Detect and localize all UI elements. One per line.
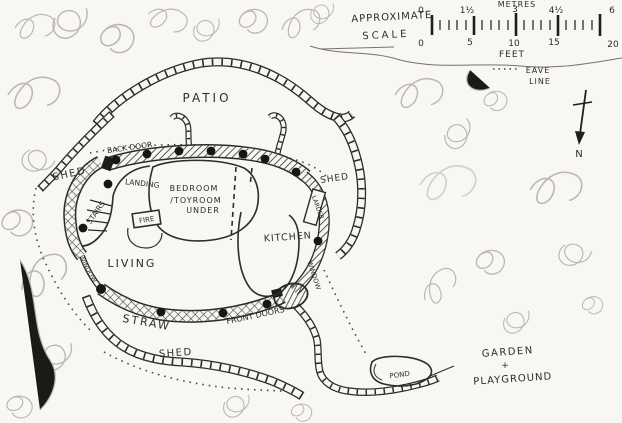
- scribble: [224, 395, 250, 417]
- interior-partitions: [82, 160, 325, 296]
- scribble: [530, 172, 582, 203]
- site-plan-page: APPROXIMATE SCALE METRES 0 1½ 3 4½ 6 0 5…: [0, 0, 622, 423]
- scribble: [20, 260, 55, 410]
- scribble: [8, 77, 60, 108]
- feet-tick-2: 10: [508, 39, 520, 49]
- metres-tick-0: 0: [418, 6, 424, 16]
- plan-labels: PATIO BACK DOOR SHED SHED LANDING BEDROO…: [52, 91, 553, 388]
- landing-label: LANDING: [125, 177, 160, 190]
- eave-line-label-1: EAVE: [526, 66, 551, 75]
- north-arrow-head: [575, 131, 585, 145]
- southeast-path-wall: [296, 306, 438, 392]
- garden-label-plus: +: [501, 361, 509, 371]
- scribble: [420, 166, 476, 199]
- scribble: [582, 297, 602, 314]
- scribble: [239, 9, 267, 33]
- scribble: [395, 79, 443, 108]
- scribble: [441, 118, 476, 151]
- post-dot: [261, 155, 270, 164]
- post-dot: [143, 150, 152, 159]
- metres-tick-3: 4½: [549, 6, 564, 16]
- scribble: [311, 4, 334, 24]
- map-legend: EAVE LINE N: [493, 66, 592, 160]
- scale-bar: APPROXIMATE SCALE METRES 0 1½ 3 4½ 6 0 5…: [351, 0, 619, 60]
- feet-tick-1: 5: [467, 38, 473, 48]
- feet-unit-label: FEET: [499, 50, 525, 60]
- feet-tick-3: 15: [548, 38, 559, 48]
- patio-label: PATIO: [182, 91, 231, 105]
- scribble: [194, 19, 220, 41]
- feet-tick-0: 0: [418, 39, 424, 49]
- post-dot: [157, 308, 166, 317]
- post-dot: [175, 147, 184, 156]
- scale-underline: [320, 47, 394, 49]
- feet-tick-4: 20: [607, 40, 619, 50]
- bedroom-dashed-short: [250, 168, 252, 186]
- post-dot: [239, 150, 248, 159]
- bedroom-label-line1: BEDROOM: [170, 184, 219, 193]
- scribble: [2, 210, 33, 236]
- scribble: [484, 91, 507, 110]
- post-dot: [292, 168, 301, 177]
- scribble: [101, 25, 134, 53]
- metres-tick-4: 6: [609, 6, 615, 16]
- post-dot: [219, 309, 228, 318]
- pond-label: POND: [389, 370, 410, 381]
- kitchen-label: KITCHEN: [263, 230, 312, 244]
- north-label: N: [575, 149, 582, 160]
- scribble: [290, 402, 313, 423]
- bedroom-dashed-partition: [231, 167, 236, 240]
- metres-tick-1: 1½: [460, 6, 475, 16]
- north-arrow-shaft: [580, 90, 586, 134]
- bedroom-label-line3: UNDER: [186, 206, 220, 215]
- scribble: [504, 311, 530, 333]
- sketch-boundary-line: [310, 46, 622, 67]
- garden-label-line1: GARDEN: [481, 345, 534, 360]
- north-arrow-cross: [573, 102, 592, 105]
- post-dot: [207, 147, 216, 156]
- post-dot: [104, 180, 113, 189]
- window-left-label: WINDOW: [77, 254, 98, 285]
- post-dot: [112, 156, 121, 165]
- post-dot: [96, 284, 106, 294]
- living-label: LIVING: [108, 257, 157, 270]
- eave-line-label-2: LINE: [529, 77, 551, 86]
- scribble: [476, 250, 504, 274]
- shed-right-label: SHED: [320, 172, 350, 186]
- boundary-line: [310, 46, 622, 67]
- right-arc-wall: [336, 117, 362, 256]
- drainpipe-horn-right: [270, 115, 284, 157]
- site-plan-sketch: APPROXIMATE SCALE METRES 0 1½ 3 4½ 6 0 5…: [0, 0, 622, 423]
- scribble: [555, 237, 592, 273]
- hearth-curve: [128, 228, 162, 248]
- bedroom-label-line2: /TOYROOM: [170, 196, 221, 205]
- pond-group: [371, 356, 455, 386]
- scale-ticks: [432, 13, 600, 36]
- post-dot: [79, 224, 88, 233]
- pond-leader-line: [430, 366, 454, 376]
- post-dot: [314, 237, 323, 246]
- metres-tick-2: 3: [512, 5, 518, 15]
- garden-label-line2: PLAYGROUND: [473, 371, 553, 387]
- eave-dots-bottom: [104, 352, 296, 392]
- top-wall: [108, 151, 306, 176]
- north-arrow: [573, 90, 592, 145]
- scale-title-line2: SCALE: [362, 29, 410, 42]
- scribble: [15, 14, 55, 38]
- feet-tick-labels: 0 5 10 15 20: [418, 38, 619, 50]
- eave-dots-southeast: [324, 270, 366, 354]
- scribble: [467, 70, 490, 90]
- scribble: [144, 1, 190, 37]
- scribble: [4, 393, 34, 420]
- metres-tick-labels: 0 1½ 3 4½ 6: [418, 5, 615, 16]
- pond-inner-line: [374, 364, 382, 380]
- scribble: [416, 264, 462, 308]
- scribble: [53, 8, 87, 38]
